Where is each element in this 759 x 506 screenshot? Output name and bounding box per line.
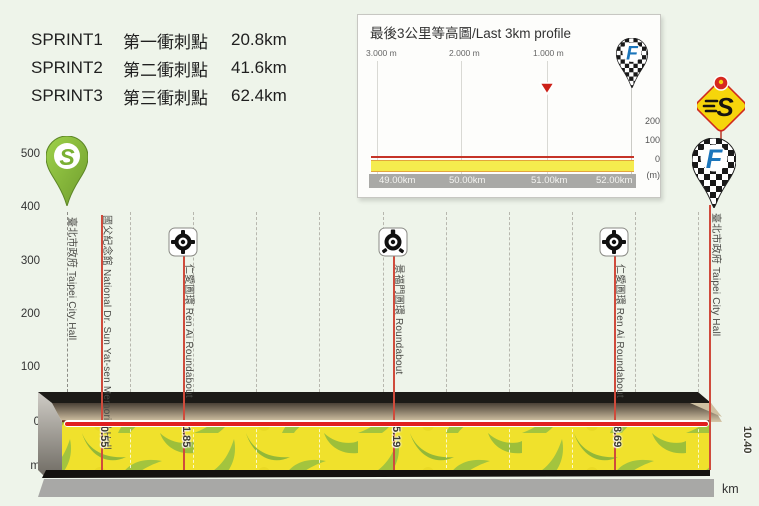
inset-elevation-band [371, 160, 634, 172]
sprint-diamond-letter: S [716, 92, 734, 122]
finish-pin-icon: F [692, 138, 736, 208]
inset-y-tick: 100 [638, 135, 660, 145]
start-pin-icon: S [46, 136, 88, 206]
km-gridline-10 [698, 212, 699, 392]
km-band-dash [509, 424, 510, 468]
togo-label-2000m: 2.000 m [449, 48, 480, 58]
inset-elevation-line [371, 156, 634, 158]
inset-finish-letter: F [626, 43, 639, 64]
inset-y-unit: (m) [638, 170, 660, 180]
roundabout-icon [599, 227, 629, 257]
km-band-dash [130, 424, 131, 468]
sprint-id: SPRINT2 [31, 58, 123, 78]
km-band-dash [319, 424, 320, 468]
inset-x-tick: 50.00km [449, 175, 485, 186]
togo-label-1000m: 1.000 m [533, 48, 564, 58]
sprint-diamond-icon: S [697, 74, 745, 132]
waypoint-km-10-40: 10.40 [741, 426, 753, 454]
inset-x-axis-bar: 49.00km 50.00km 51.00km 52.00km [369, 174, 636, 188]
sprint-distance: 41.6km [231, 58, 287, 78]
waypoint-label-8-69: 仁愛圓環 Ren Ai Roundabout [614, 264, 629, 398]
sprint-distance: 62.4km [231, 86, 287, 106]
inset-y-tick: 0 [638, 154, 660, 164]
finish-letter: F [706, 144, 724, 174]
km-gridline-9 [635, 212, 636, 392]
waypoint-label-finish: 臺北市政府 Taipei City Hall [710, 213, 725, 336]
sprint-row: SPRINT2 第二衝刺點 41.6km [31, 54, 287, 82]
waypoint-label-5-19: 景福門圓環 Roundabout [393, 264, 408, 374]
km-band-dash [698, 424, 699, 468]
waypoint-label-start: 臺北市政府 Taipei City Hall [66, 217, 81, 340]
inset-y-tick: 200 [638, 116, 660, 126]
y-tick-300: 300 [10, 255, 40, 267]
waypoint-km-1-85: 1.85 [180, 426, 192, 447]
km-band-dash [446, 424, 447, 468]
km-gridline-8 [572, 212, 573, 392]
inset-x-tick: 52.00km [596, 175, 632, 186]
y-tick-400: 400 [10, 201, 40, 213]
y-tick-500: 500 [10, 148, 40, 160]
inset-x-tick: 51.00km [531, 175, 567, 186]
waypoint-label-0-55: 國父紀念館 National Dr. Sun Yat-sen Memorial … [101, 215, 116, 450]
waypoint-km-5-19: 5.19 [390, 426, 402, 447]
last-3km-inset-panel: 最後3公里等高圖/Last 3km profile 3.000 m 2.000 … [357, 14, 661, 198]
roundabout-icon [168, 227, 198, 257]
sprint-name-zh: 第三衝刺點 [123, 84, 231, 109]
y-tick-200: 200 [10, 308, 40, 320]
waypoint-km-0-55: 0.55 [98, 426, 110, 447]
km-gridline-1 [130, 212, 131, 392]
km-gridline-7 [509, 212, 510, 392]
inset-title: 最後3公里等高圖/Last 3km profile [370, 22, 571, 42]
finish-pin-icon: F [613, 38, 651, 88]
course-profile-page: SPRINT1 第一衝刺點 20.8km SPRINT2 第二衝刺點 41.6k… [0, 0, 759, 506]
sprint-id: SPRINT3 [31, 86, 123, 106]
waypoint-km-8-69: 8.69 [611, 426, 623, 447]
km-gridline-3 [256, 212, 257, 392]
km-gridline-4 [319, 212, 320, 392]
sprint-distance: 20.8km [231, 30, 287, 50]
zero-elevation-line [64, 420, 709, 427]
sprint-row: SPRINT3 第三衝刺點 62.4km [31, 82, 287, 110]
km-gridline-6 [446, 212, 447, 392]
inset-x-tick: 49.00km [379, 175, 415, 186]
sprint-id: SPRINT1 [31, 30, 123, 50]
km-band-dash [572, 424, 573, 468]
km-band-dash [193, 424, 194, 468]
profile-3d-block [30, 385, 730, 506]
sprint-list: SPRINT1 第一衝刺點 20.8km SPRINT2 第二衝刺點 41.6k… [31, 26, 287, 110]
sprint-name-zh: 第二衝刺點 [123, 56, 231, 81]
togo-label-3000m: 3.000 m [366, 48, 397, 58]
roundabout-gate-icon [378, 227, 408, 257]
km-band-dash [256, 424, 257, 468]
waypoint-label-1-85: 仁愛圓環 Ren Ai Roundabout [183, 264, 198, 398]
sprint-row: SPRINT1 第一衝刺點 20.8km [31, 26, 287, 54]
start-letter: S [59, 144, 75, 170]
flamme-rouge-triangle-icon [538, 81, 556, 97]
y-tick-100: 100 [10, 361, 40, 373]
sprint-name-zh: 第一衝刺點 [123, 28, 231, 53]
